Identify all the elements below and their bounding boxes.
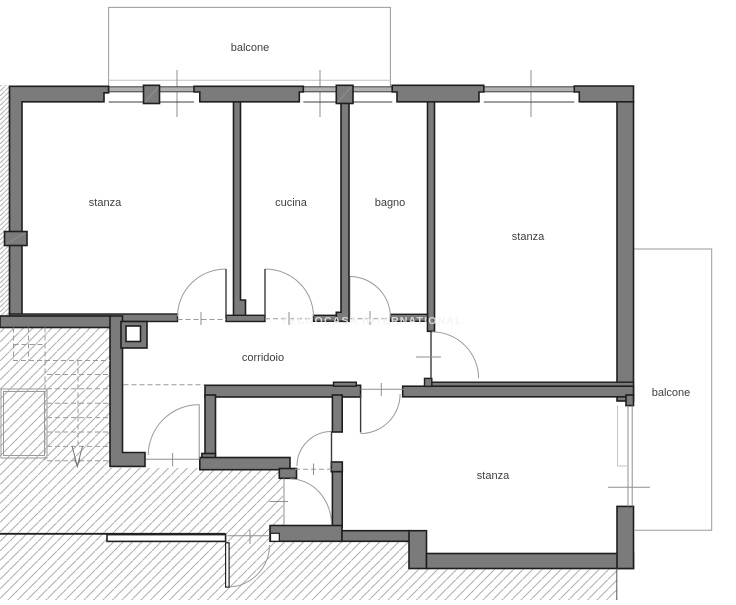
svg-text:balcone: balcone bbox=[231, 42, 270, 54]
svg-text:TECNOCASA INTERNATIONAL: TECNOCASA INTERNATIONAL bbox=[281, 315, 463, 327]
svg-text:cucina: cucina bbox=[275, 197, 308, 209]
svg-text:balcone: balcone bbox=[652, 387, 691, 399]
svg-text:stanza: stanza bbox=[477, 470, 510, 482]
svg-text:bagno: bagno bbox=[375, 197, 406, 209]
svg-text:stanza: stanza bbox=[512, 231, 545, 243]
svg-text:stanza: stanza bbox=[89, 197, 122, 209]
svg-text:corridoio: corridoio bbox=[242, 352, 284, 364]
